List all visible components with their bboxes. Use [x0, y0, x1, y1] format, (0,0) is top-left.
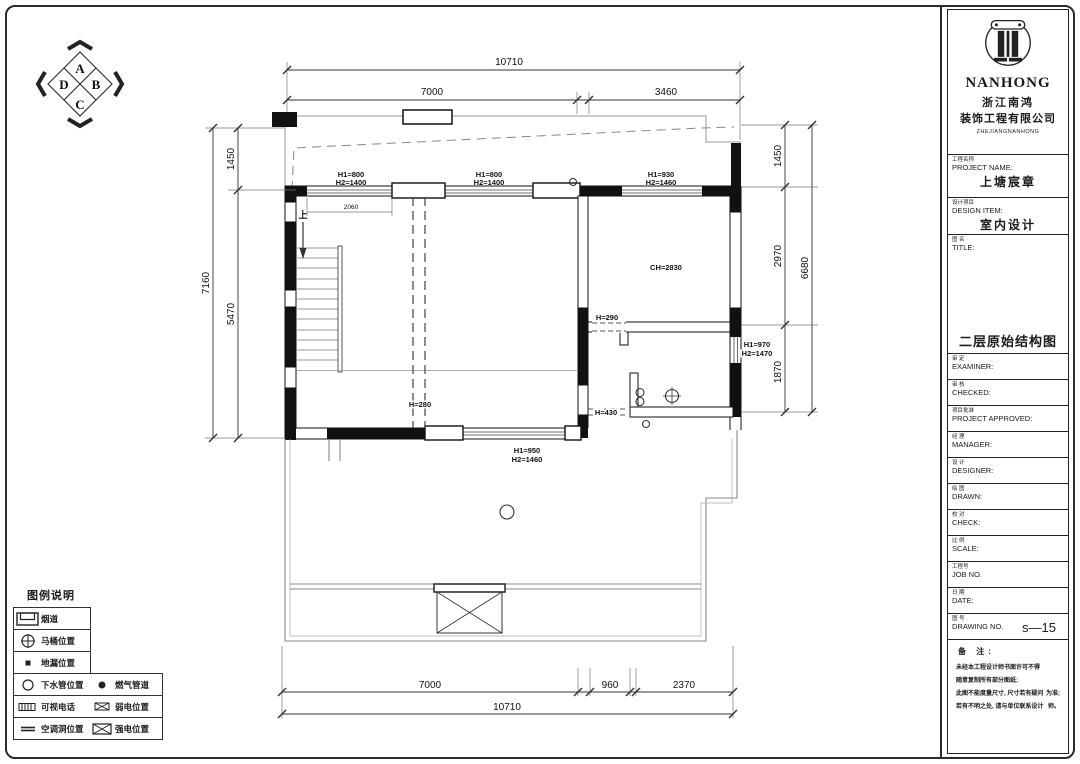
video-phone-icon — [14, 702, 41, 712]
compass-letter-b: B — [92, 77, 101, 92]
staircase — [297, 246, 342, 372]
toilet-symbol — [663, 387, 681, 405]
dim-bottom-1: 7000 — [419, 680, 442, 691]
legend-row-pipes: 下水管位置 燃气管道 — [13, 673, 163, 696]
project-name-value: 上塘宸章 — [952, 173, 1064, 190]
flue-icon — [14, 612, 41, 626]
window-label: H1=970 — [744, 340, 770, 349]
company-logo-box: NANHONG 浙江南鸿 装饰工程有限公司 ZHEJIANGNANHONG — [947, 9, 1069, 155]
legend-row-floor-drain: 地漏位置 — [13, 651, 91, 674]
opening-label: H=290 — [596, 313, 618, 322]
dim-top-left: 7000 — [421, 87, 444, 98]
drawing-no-value: s—15 — [1022, 620, 1056, 635]
dim-right-low: 1870 — [773, 360, 784, 383]
drawing-title-field: 图 名 TITLE: 二层原始结构图 — [947, 234, 1069, 354]
drain-pipe-symbol — [500, 505, 514, 519]
dim-bottom-overall: 10710 — [493, 702, 521, 713]
legend: 图例说明 烟道 马桶位置 地漏位置 下水管位置 — [13, 587, 165, 740]
dim-left-top: 1450 — [226, 147, 237, 170]
terrace-flue-box — [434, 584, 505, 633]
compass-letter-a: A — [75, 61, 85, 76]
drawing-title-value: 二层原始结构图 — [948, 331, 1068, 350]
dimension-top — [283, 62, 744, 140]
nanhong-logo-icon — [980, 16, 1036, 68]
window-label: H2=1460 — [646, 178, 677, 187]
legend-row-toilet: 马桶位置 — [13, 629, 91, 652]
dim-2060: 2060 — [344, 204, 359, 211]
dim-right-top: 1450 — [773, 144, 784, 167]
stair-up-label: 上 — [298, 209, 307, 220]
drawing-sheet: A B C D — [0, 0, 1080, 764]
beam-dashed-lines — [413, 197, 425, 428]
project-name-field: 工程名称 PROJECT NAME: 上塘宸章 — [947, 154, 1069, 198]
dim-left-bottom: 5470 — [226, 302, 237, 325]
dim-bottom-2: 960 — [602, 680, 619, 691]
window-label: H2=1470 — [742, 349, 773, 358]
opening-label: H=430 — [595, 408, 617, 417]
project-approved-field: 项目批准 PROJECT APPROVED: — [947, 405, 1069, 432]
design-item-field: 设计项目 DESIGN ITEM: 室内设计 — [947, 197, 1069, 235]
dim-right-outer: 6680 — [800, 256, 811, 279]
dim-right-mid: 2970 — [773, 244, 784, 267]
compass-letter-c: C — [75, 97, 84, 112]
legend-row-power: 空调洞位置 强电位置 — [13, 717, 163, 740]
strong-current-icon — [88, 723, 115, 735]
dim-top-overall: 10710 — [495, 57, 523, 68]
window-lines — [307, 190, 738, 435]
window-label: H2=1400 — [336, 178, 367, 187]
date-field: 日 期 DATE: — [947, 587, 1069, 614]
legend-row-phone: 可视电话 弱电位置 — [13, 695, 163, 718]
window-label: H2=1460 — [512, 455, 543, 464]
ceiling-height-label: CH=2830 — [650, 263, 682, 272]
legend-row-flue: 烟道 — [13, 607, 91, 630]
notes-field: 备 注: 未经本工程设计师书面许可不得 随意复制所有部分图纸; 此图不能度量尺寸… — [947, 639, 1069, 754]
wall-columns — [285, 186, 741, 440]
stair-direction-arrow — [300, 222, 307, 259]
examiner-field: 审 定 EXAMINER: — [947, 353, 1069, 380]
job-no-field: 工程号 JOB NO. — [947, 561, 1069, 588]
legend-title: 图例说明 — [27, 587, 165, 603]
check-field: 校 对 CHECK: — [947, 509, 1069, 536]
floor-drain-icon — [14, 658, 41, 668]
wall-piers — [285, 183, 741, 440]
company-name-cn-1: 浙江南鸿 — [952, 94, 1064, 110]
ac-hole-icon — [14, 724, 41, 734]
scale-field: 比 例 SCALE: — [947, 535, 1069, 562]
pipe-symbol — [643, 421, 650, 428]
compass: A B C D — [38, 42, 122, 126]
designer-field: 设 计 DESIGNER: — [947, 457, 1069, 484]
window-label: H2=1400 — [474, 178, 505, 187]
design-item-value: 室内设计 — [952, 216, 1064, 233]
dim-bottom-3: 2370 — [673, 680, 696, 691]
weak-current-icon — [88, 702, 115, 711]
company-romanized: ZHEJIANGNANHONG — [952, 129, 1064, 135]
dimension-left — [205, 124, 296, 442]
checked-field: 审 核 CHECKED: — [947, 379, 1069, 406]
toilet-position-icon — [14, 633, 41, 649]
manager-field: 经 理 MANAGER: — [947, 431, 1069, 458]
drain-pipe-icon — [14, 678, 41, 692]
dim-left-outer: 7160 — [201, 271, 212, 294]
drawn-field: 绘 图 DRAWN: — [947, 483, 1069, 510]
title-block: NANHONG 浙江南鸿 装饰工程有限公司 ZHEJIANGNANHONG 工程… — [940, 7, 1073, 757]
gas-pipe-icon — [88, 680, 115, 690]
compass-letter-d: D — [59, 77, 68, 92]
beam-height-label: H=280 — [409, 400, 431, 409]
plan-symbols — [500, 179, 681, 520]
company-name-en: NANHONG — [952, 75, 1064, 92]
walls — [285, 186, 741, 439]
drawing-no-field: 图 号 DRAWING NO. s—15 — [947, 613, 1069, 640]
company-name-cn-2: 装饰工程有限公司 — [952, 110, 1064, 126]
dim-top-right: 3460 — [655, 87, 678, 98]
window-label: H1=950 — [514, 446, 540, 455]
